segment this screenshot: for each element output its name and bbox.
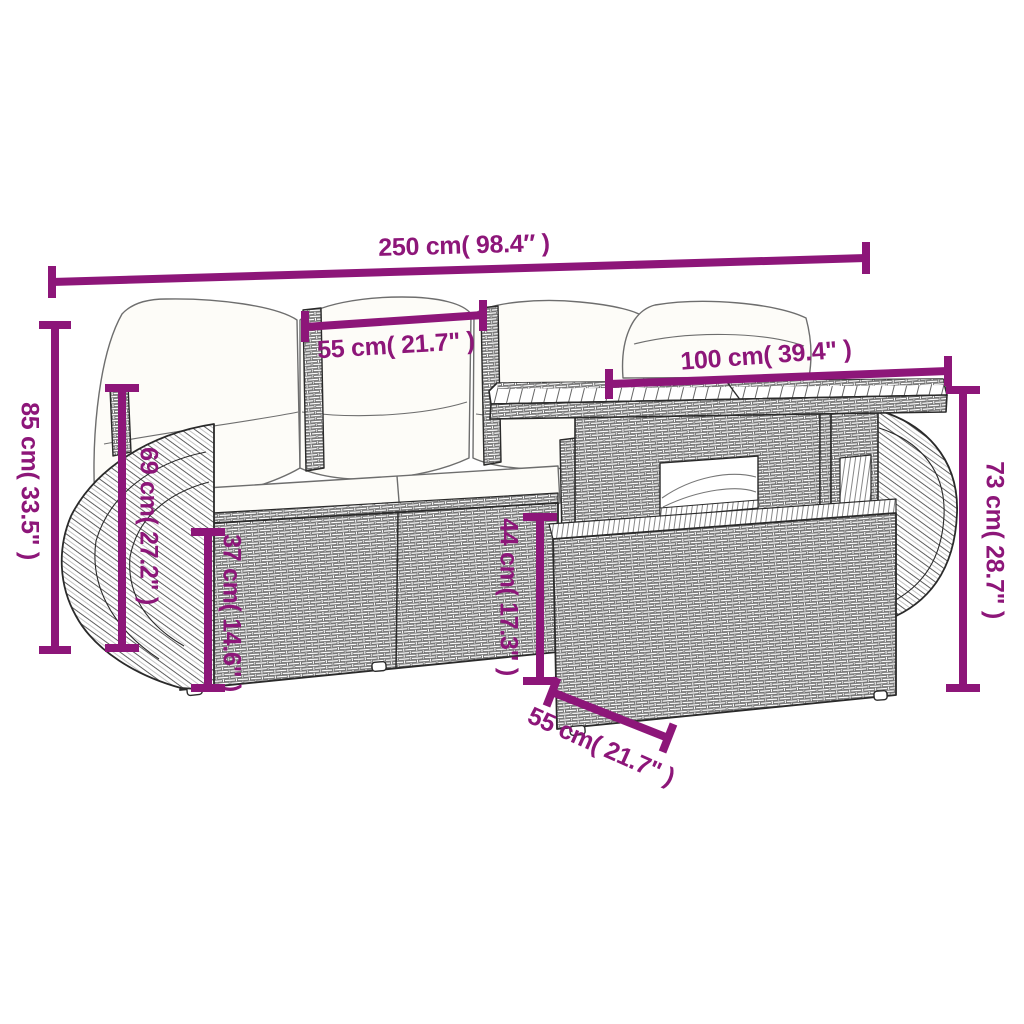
table-lower-tier (549, 499, 896, 736)
dim-label-overall-height: 85 cm( 33.5" ) (15, 402, 44, 560)
table-lower-front-panel (553, 513, 896, 729)
dim-label-seat-height: 44 cm( 17.3" ) (494, 518, 523, 676)
dim-label-overall-width: 250 cm( 98.4″ ) (378, 229, 550, 263)
furniture-dimension-diagram: 250 cm( 98.4″ ) 55 cm( 21.7" ) 100 cm( 3… (0, 0, 1024, 1024)
sofa-foot-middle (372, 661, 387, 671)
dim-label-back-height: 69 cm( 27.2" ) (134, 447, 163, 605)
dim-line-overall-height (39, 325, 71, 650)
table-foot-right (874, 691, 888, 701)
dim-label-table-height: 73 cm( 28.7" ) (980, 461, 1009, 619)
dim-label-base-height: 37 cm( 14.6" ) (217, 534, 246, 692)
table-top-slab (489, 379, 947, 419)
